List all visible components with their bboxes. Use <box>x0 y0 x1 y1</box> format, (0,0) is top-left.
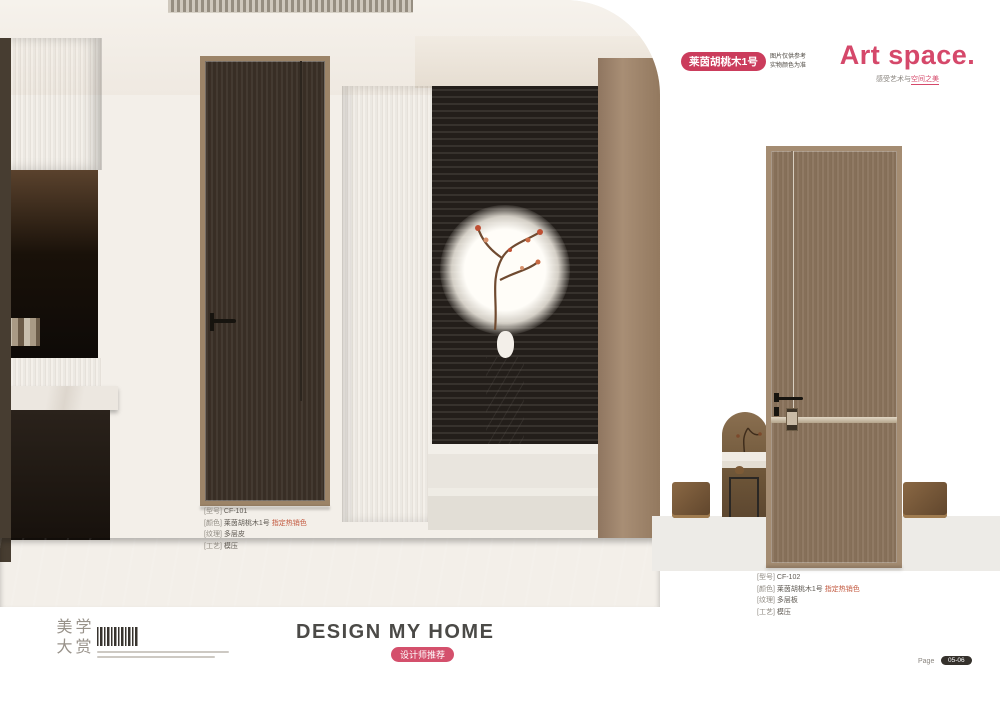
spec-label: [工艺] <box>204 543 222 550</box>
marble-floor <box>0 538 660 607</box>
series-note-line1: 图片仅供参考 <box>770 53 806 62</box>
spec-note: 指定热销色 <box>825 586 860 593</box>
spec-row: [型号]CF-101 <box>204 506 307 518</box>
vase <box>497 331 514 358</box>
wall-cabinet-upper <box>0 38 102 170</box>
spec-row: [纹理]多层皮 <box>204 529 307 541</box>
arch-shelf-top <box>722 452 768 461</box>
designer-recommend-badge: 设计师推荐 <box>391 647 454 662</box>
brand-subtitle: 感受艺术与空间之美 <box>820 74 995 84</box>
brand-logo: 美 学 大 赏 <box>55 618 93 658</box>
spec-label: [工艺] <box>757 609 775 616</box>
blossom-branch-illustration <box>440 210 570 340</box>
brand-block: Art space. 感受艺术与空间之美 <box>820 40 995 84</box>
door-cf102-lock-rosette <box>774 407 779 416</box>
door-cf102-strip-emblem <box>786 408 798 431</box>
air-vent <box>168 0 413 13</box>
logo-char: 美 <box>55 618 74 638</box>
logo-char: 学 <box>74 618 93 638</box>
page-number-badge: 05-06 <box>941 656 972 665</box>
spec-value: 莱茵胡桃木1号 <box>777 586 823 593</box>
spec-value: 多层皮 <box>224 531 245 538</box>
fine-print-line <box>97 656 215 658</box>
door-cf101-handle <box>212 319 236 323</box>
door-cf102-groove <box>791 151 793 419</box>
fine-print-line <box>97 651 229 653</box>
marble-counter <box>0 386 118 410</box>
logo-char: 赏 <box>74 638 93 658</box>
door-cf102-shadow <box>766 566 902 570</box>
spec-value: CF-102 <box>777 574 800 581</box>
door-cf101-leaf <box>205 61 325 501</box>
wire-stool <box>729 477 759 517</box>
pedestal <box>486 357 524 449</box>
door-cf101-groove <box>300 61 302 401</box>
series-note-line2: 实物颜色为准 <box>770 62 806 71</box>
spec-note: 指定热销色 <box>272 520 307 527</box>
footer-slogan: DESIGN MY HOME <box>296 621 494 644</box>
brand-subtitle-accent: 空间之美 <box>911 76 939 85</box>
side-panel-dark <box>0 38 11 562</box>
door-cf101-frame <box>200 56 330 506</box>
logo-char: 大 <box>55 638 74 658</box>
left-door-spec: [型号]CF-101 [颜色]莱茵胡桃木1号指定热销色 [纹理]多层皮 [工艺]… <box>204 506 307 552</box>
catalog-page: [型号]CF-101 [颜色]莱茵胡桃木1号指定热销色 [纹理]多层皮 [工艺]… <box>0 0 1000 703</box>
spec-value: 模压 <box>777 609 791 616</box>
series-note: 图片仅供参考 实物颜色为准 <box>770 53 806 71</box>
spec-row: [工艺]模压 <box>204 541 307 553</box>
wood-column <box>598 58 660 538</box>
wood-wall-panel <box>342 86 432 522</box>
counter-base <box>0 410 110 540</box>
spec-label: [型号] <box>757 574 775 581</box>
brand-subtitle-gray: 感受艺术与 <box>876 76 911 83</box>
cube-stool-left <box>672 482 710 518</box>
barcode <box>97 627 139 646</box>
spec-value: 莱茵胡桃木1号 <box>224 520 270 527</box>
spec-row: [纹理]多层板 <box>757 595 860 607</box>
series-badge: 莱茵胡桃木1号 <box>681 52 766 71</box>
page-label: Page <box>918 658 934 665</box>
spec-row: [型号]CF-102 <box>757 572 860 584</box>
stool-kettle <box>735 466 744 474</box>
door-cf102-handle <box>777 397 803 400</box>
spec-row: [颜色]莱茵胡桃木1号指定热销色 <box>204 518 307 530</box>
spec-value: 模压 <box>224 543 238 550</box>
spec-label: [颜色] <box>204 520 222 527</box>
showroom-photo: [型号]CF-101 [颜色]莱茵胡桃木1号指定热销色 [纹理]多层皮 [工艺]… <box>0 0 660 607</box>
books <box>6 318 40 346</box>
wall-cabinet-lower <box>0 358 102 388</box>
spec-label: [颜色] <box>757 586 775 593</box>
spec-label: [纹理] <box>757 597 775 604</box>
cube-stool-right <box>903 482 947 518</box>
door-cf102-frame <box>766 146 902 568</box>
spec-row: [颜色]莱茵胡桃木1号指定热销色 <box>757 584 860 596</box>
right-door-spec: [型号]CF-102 [颜色]莱茵胡桃木1号指定热销色 [纹理]多层板 [工艺]… <box>757 572 860 618</box>
spec-value: 多层板 <box>777 597 798 604</box>
spec-row: [工艺]模压 <box>757 607 860 619</box>
arch-shelf-lower <box>722 461 768 468</box>
brand-title: Art space. <box>820 40 995 71</box>
spec-label: [型号] <box>204 508 222 515</box>
spec-label: [纹理] <box>204 531 222 538</box>
spec-value: CF-101 <box>224 508 247 515</box>
door-cf102-leaf <box>771 151 897 563</box>
